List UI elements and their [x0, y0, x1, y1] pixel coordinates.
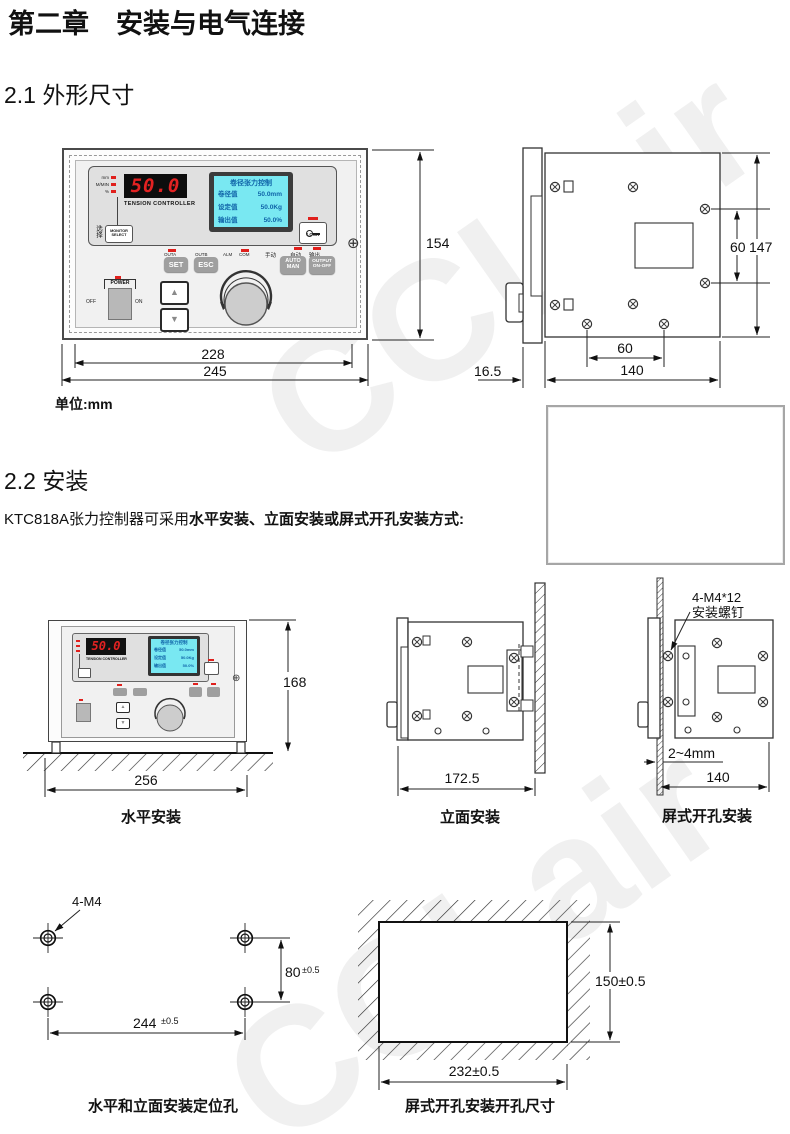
dim-hmount-width: 256	[134, 772, 158, 788]
mini-esc-button	[133, 688, 147, 696]
hole-spec-label: 4-M4	[72, 894, 102, 909]
lock-label: LOCK	[300, 232, 326, 237]
lcd-row-label: 输出值	[218, 214, 238, 227]
dim-pmount-thickness: 2~4mm	[668, 745, 715, 761]
caption-panel-mount: 屏式开孔安装	[662, 807, 753, 825]
lcd-row-value: 50.0Kg	[261, 201, 282, 214]
mini-lcd-value: 50.0Kg	[181, 654, 194, 662]
mini-monitor-button	[78, 668, 91, 678]
dim-pmount-depth: 140	[706, 769, 730, 785]
off-label: OFF	[86, 299, 96, 305]
output-led	[313, 247, 321, 250]
indicator-led-percent	[111, 190, 116, 193]
com-label: COM	[239, 252, 250, 257]
indicator-label-percent: %	[93, 189, 109, 194]
lcd-title: 卷径张力控制	[214, 178, 288, 188]
bezel-screw-icon: ⊕	[347, 234, 360, 252]
jog-knob	[214, 268, 278, 330]
manual-label: 手动	[265, 251, 276, 259]
mini-lock-button	[204, 662, 219, 675]
caption-horizontal-mount: 水平安装	[121, 808, 182, 826]
output-onoff-button: OUTPUT ON-OFF	[309, 256, 335, 274]
monitor-select-button: MONITOR SELECT	[105, 225, 133, 243]
up-button: ▲	[160, 281, 189, 305]
mini-auto-man-button	[189, 687, 202, 697]
mini-brand-label: TENSION CONTROLLER	[86, 657, 140, 661]
dim-side-hole-h: 60	[617, 340, 633, 356]
display-section: mm M/MIN % 50.0 TENSION CONTROLLER 卷径张力控…	[88, 166, 337, 246]
section-2-1-heading: 2.1 外形尺寸	[4, 76, 134, 110]
auto-man-line2: MAN	[280, 264, 306, 270]
mini-set-button	[113, 688, 127, 696]
mini-down-button: ▼	[116, 718, 130, 729]
tension-controller-front-view: mm M/MIN % 50.0 TENSION CONTROLLER 卷径张力控…	[62, 148, 368, 340]
dim-cutout-v: 150±0.5	[595, 973, 646, 989]
mini-lock-led	[208, 659, 214, 661]
caption-positioning-holes: 水平和立面安装定位孔	[88, 1097, 238, 1115]
lcd-row-label: 设定值	[218, 201, 238, 214]
dim-cutout-h: 232±0.5	[449, 1063, 500, 1079]
mini-jog-knob	[151, 697, 189, 735]
intro-bold: 水平安装、立面安装或屏式开孔安装方式:	[189, 511, 464, 528]
dim-front-width-inner: 228	[201, 346, 225, 362]
lock-led	[308, 217, 318, 220]
mini-lcd: 卷径张力控制 卷径值50.0mm 设定值50.0Kg 输出值50.0%	[148, 636, 200, 676]
dim-hmount-height: 168	[283, 674, 307, 690]
mini-lcd-value: 50.0%	[183, 662, 194, 670]
dim-front-height: 154	[426, 235, 450, 251]
mini-lcd-label: 卷径值	[154, 646, 166, 654]
mini-indicator-led	[76, 640, 80, 642]
dim-side-bezel: 16.5	[474, 363, 501, 379]
section-2-2-heading: 2.2 安装	[4, 462, 88, 496]
indicator-led-mm	[111, 176, 116, 179]
indicator-label-mmin: M/MIN	[93, 182, 109, 187]
lcd-row-value: 50.0mm	[258, 188, 282, 201]
screw-note-line2: 安装螺钉	[692, 605, 744, 620]
output-line2: ON-OFF	[309, 264, 335, 269]
lock-button: LOCK	[299, 222, 327, 244]
dim-side-height: 147	[749, 239, 773, 255]
lcd-module: 卷径张力控制 卷径值50.0mm 设定值50.0Kg 输出值50.0%	[209, 172, 293, 232]
dim-holes-h-tol: ±0.5	[161, 1016, 178, 1026]
mini-up-button: ▲	[116, 702, 130, 713]
chapter-title: 第二章 安装与电气连接	[8, 2, 305, 41]
down-button: ▼	[160, 308, 189, 332]
mini-power-rocker	[76, 703, 91, 722]
indicator-label-mm: mm	[93, 175, 109, 180]
cutout-drawing	[358, 900, 643, 1090]
lcd-row-label: 卷径值	[218, 188, 238, 201]
mini-led	[211, 683, 216, 685]
empty-figure-box	[546, 405, 785, 565]
dim-side-depth: 140	[620, 362, 644, 378]
mini-led	[117, 684, 122, 686]
mini-lcd-label: 设定值	[154, 654, 166, 662]
dim-side-hole-v: 60	[730, 239, 746, 255]
lcd-row-value: 50.0%	[264, 214, 282, 227]
mini-output-button	[207, 687, 220, 697]
vertical-mount-drawing	[387, 583, 545, 796]
manual-page: CCLair CCLair 第二章 安装与电气连接 2.1 外形尺寸 单位:mm…	[0, 0, 790, 1134]
selector-line	[117, 197, 118, 227]
dim-holes-v: 80	[285, 964, 301, 980]
power-rocker	[108, 288, 132, 320]
mini-seven-segment: 50.0	[86, 638, 126, 655]
side-view-drawing	[506, 148, 720, 343]
mini-display-section: 50.0 TENSION CONTROLLER 卷径张力控制 卷径值50.0mm…	[72, 633, 209, 682]
select-cn-label: 选择	[94, 225, 101, 242]
indicator-led-mmin	[111, 183, 116, 186]
mini-lcd-label: 输出值	[154, 662, 166, 670]
caption-cutout: 屏式开孔安装开孔尺寸	[405, 1097, 555, 1115]
on-label: ON	[135, 299, 143, 305]
installation-intro: KTC818A张力控制器可采用水平安装、立面安装或屏式开孔安装方式:	[4, 508, 464, 529]
mini-power-led	[79, 699, 83, 701]
key-icon	[300, 225, 326, 232]
lcd-screen: 卷径张力控制 卷径值50.0mm 设定值50.0Kg 输出值50.0%	[214, 176, 288, 227]
dim-holes-h: 244	[133, 1015, 157, 1031]
auto-led	[294, 247, 302, 250]
mini-lcd-screen: 卷径张力控制 卷径值50.0mm 设定值50.0Kg 输出值50.0%	[151, 639, 197, 673]
mini-indicator-led	[76, 650, 80, 652]
mini-led	[193, 683, 198, 685]
auto-man-button: AUTO MAN	[280, 256, 306, 274]
unit-label: 单位:mm	[55, 394, 113, 414]
mini-lcd-value: 50.0mm	[179, 646, 194, 654]
tension-controller-mini-front: 50.0 TENSION CONTROLLER 卷径张力控制 卷径值50.0mm…	[48, 620, 247, 742]
caption-vertical-mount: 立面安装	[440, 808, 501, 826]
select-label: SELECT	[106, 233, 132, 237]
dim-vmount-width: 172.5	[444, 770, 479, 786]
mini-bezel-screw-icon: ⊕	[232, 673, 240, 684]
mini-indicator-led	[76, 645, 80, 647]
seven-segment-display: 50.0	[124, 174, 187, 198]
alm-label: ALM	[223, 252, 232, 257]
dim-front-width-outer: 245	[203, 363, 227, 379]
screw-note-line1: 4-M4*12	[692, 590, 741, 605]
intro-normal: KTC818A张力控制器可采用	[4, 511, 189, 528]
dim-holes-v-tol: ±0.5	[302, 965, 319, 975]
set-button: SET	[164, 257, 188, 272]
